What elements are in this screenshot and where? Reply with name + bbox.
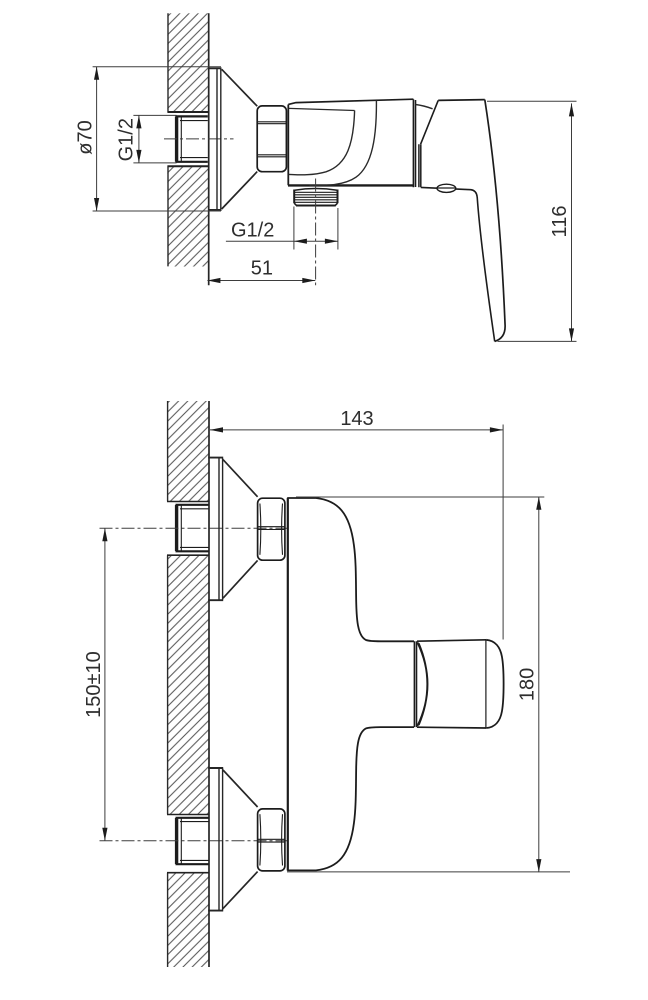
svg-text:G1/2: G1/2 — [116, 118, 138, 161]
svg-text:180: 180 — [517, 668, 539, 701]
svg-text:116: 116 — [549, 206, 571, 238]
svg-text:ø70: ø70 — [75, 120, 97, 154]
svg-text:G1/2: G1/2 — [231, 220, 274, 242]
svg-text:150±10: 150±10 — [83, 651, 105, 718]
svg-text:51: 51 — [251, 257, 273, 279]
svg-text:143: 143 — [340, 408, 373, 430]
